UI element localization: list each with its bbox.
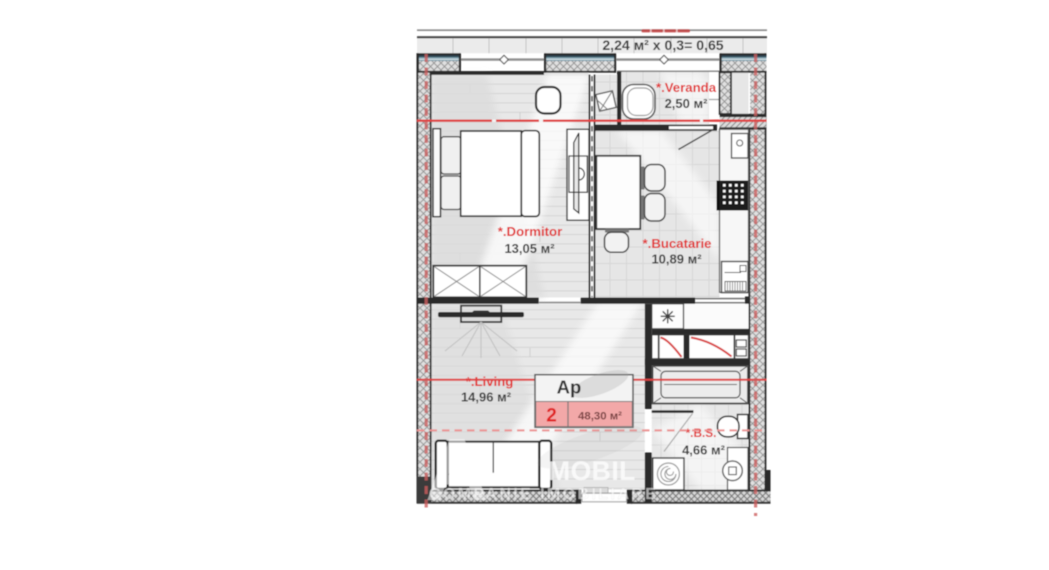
svg-text:48,30 м²: 48,30 м² (578, 411, 622, 423)
svg-text:Ap: Ap (557, 377, 582, 398)
svg-text:2,50 м²: 2,50 м² (665, 96, 709, 111)
svg-text:13,05 м²: 13,05 м² (504, 241, 555, 256)
svg-text:MOBIL: MOBIL (548, 456, 636, 486)
svg-text:COMPANIE IMOBILIARE: COMPANIE IMOBILIARE (429, 486, 658, 503)
svg-text:A: A (425, 420, 489, 519)
svg-text:4,66 м²: 4,66 м² (682, 443, 726, 458)
svg-text:*.Dormitor: *.Dormitor (498, 224, 562, 239)
svg-text:2: 2 (546, 406, 557, 427)
svg-text:*.Veranda: *.Veranda (656, 80, 717, 95)
svg-text:*.Bucatarie: *.Bucatarie (643, 236, 712, 251)
svg-text:2,24 м² x 0,3= 0,65: 2,24 м² x 0,3= 0,65 (602, 37, 723, 53)
svg-text:14,96 м²: 14,96 м² (461, 390, 512, 405)
svg-text:10,89 м²: 10,89 м² (651, 252, 702, 267)
svg-text:*.Living: *.Living (466, 374, 514, 389)
svg-text:*.B.S.: *.B.S. (686, 426, 717, 440)
